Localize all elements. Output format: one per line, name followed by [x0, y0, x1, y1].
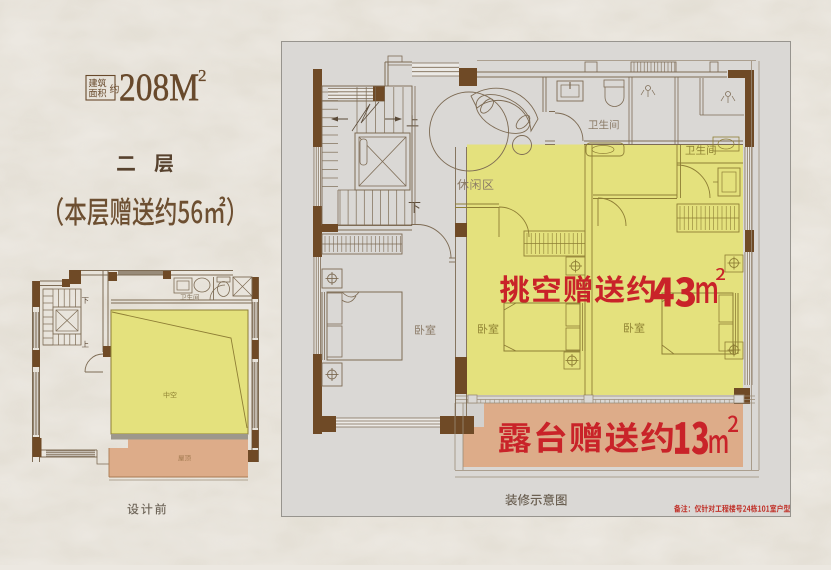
- svg-text:208M: 208M: [119, 66, 199, 109]
- svg-text:2: 2: [198, 66, 207, 85]
